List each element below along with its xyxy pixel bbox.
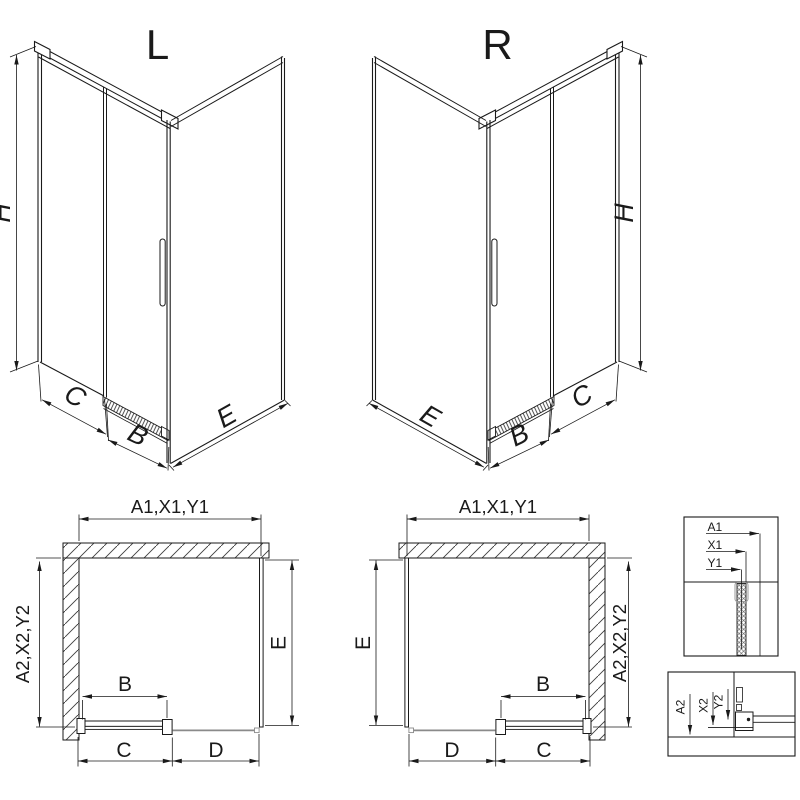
plan-right-dim-top: A1,X1,Y1 <box>459 496 537 517</box>
iso-right-dim-e: E <box>415 399 446 434</box>
plan-left-dim-top: A1,X1,Y1 <box>131 496 209 517</box>
iso-left-dim-b: B <box>123 417 152 452</box>
plan-right-wall-top <box>399 543 605 558</box>
detail-top-label-x1: X1 <box>708 538 723 552</box>
plan-right-dim-c: C <box>536 739 551 762</box>
detail-bottom-label-y2: Y2 <box>712 694 726 709</box>
plan-right-dim-e: E <box>352 636 375 650</box>
plan-right-dim-wall: A2,X2,Y2 <box>609 604 630 682</box>
iso-left-dim-h: H <box>0 203 16 223</box>
detail-top-label-y1: Y1 <box>708 556 723 570</box>
plan-left-dim-b: B <box>118 673 132 696</box>
iso-right-title: R <box>482 21 513 68</box>
plan-left-view: A1,X1,Y1 A2,X2,Y2 E B C D <box>12 496 299 767</box>
iso-left-dim-e: E <box>211 398 242 433</box>
detail-top-label-a1: A1 <box>708 520 723 534</box>
detail-bottom-label-a2: A2 <box>674 699 688 714</box>
iso-right-dim-c: C <box>566 378 598 414</box>
plan-right-wall-side <box>589 558 605 740</box>
iso-right-dim-b: B <box>504 417 533 452</box>
plan-left-dim-e: E <box>268 636 291 650</box>
plan-left-dim-wall: A2,X2,Y2 <box>12 605 33 683</box>
plan-left-dim-c: C <box>116 739 131 762</box>
iso-left-title: L <box>146 21 170 68</box>
iso-left-dim-c: C <box>60 378 92 414</box>
plan-right-dim-d: D <box>444 739 459 762</box>
detail-bottom-box: A2 X2 Y2 <box>668 672 795 756</box>
iso-right-view: R H C B E <box>367 21 648 471</box>
detail-bottom-label-x2: X2 <box>697 698 711 713</box>
plan-right-view: A1,X1,Y1 A2,X2,Y2 E B C D <box>352 496 632 767</box>
plan-left-dim-d: D <box>208 739 223 762</box>
plan-left-wall-top <box>63 543 269 558</box>
plan-left-wall-side <box>63 558 79 740</box>
detail-top-box: A1 X1 Y1 <box>684 517 778 656</box>
drawing-sheet: L H C B E R H C B E A1,X1,Y1 A2,X2,Y2 E … <box>0 0 800 800</box>
plan-right-dim-b: B <box>536 673 550 696</box>
iso-right-dim-h: H <box>609 203 639 223</box>
shower-enclosure-diagram: L H C B E R H C B E A1,X1,Y1 A2,X2,Y2 E … <box>0 0 800 800</box>
iso-left-view: L H C B E <box>0 21 291 471</box>
